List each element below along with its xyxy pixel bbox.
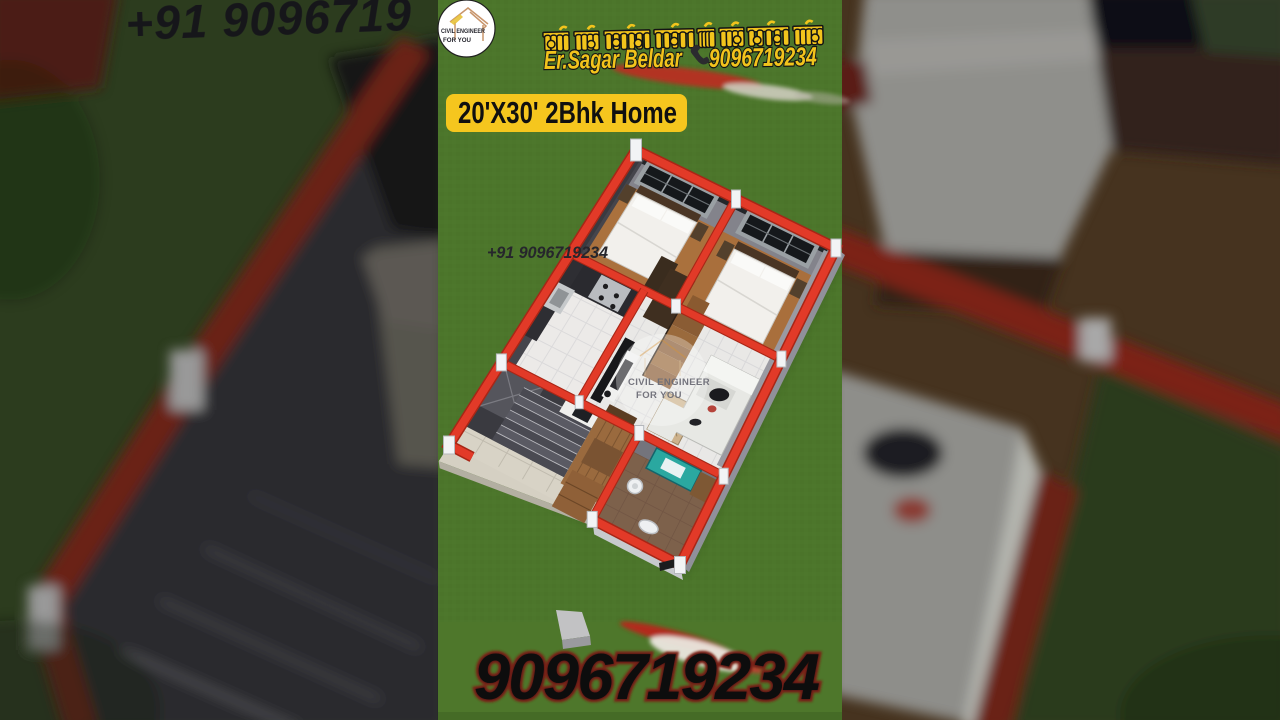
- svg-text:FOR YOU: FOR YOU: [636, 390, 682, 401]
- svg-text:+91 9096719234: +91 9096719234: [487, 243, 609, 262]
- svg-text:FOR YOU: FOR YOU: [443, 37, 471, 44]
- svg-text:Er.Sagar Beldar: Er.Sagar Beldar: [544, 43, 684, 75]
- svg-text:CIVIL ENGINEER: CIVIL ENGINEER: [441, 28, 485, 35]
- svg-text:9096719234: 9096719234: [474, 640, 822, 713]
- svg-text:CIVIL ENGINEER: CIVIL ENGINEER: [628, 377, 710, 388]
- svg-text:20'X30' 2Bhk Home: 20'X30' 2Bhk Home: [458, 95, 677, 130]
- svg-text:9096719234: 9096719234: [709, 41, 818, 73]
